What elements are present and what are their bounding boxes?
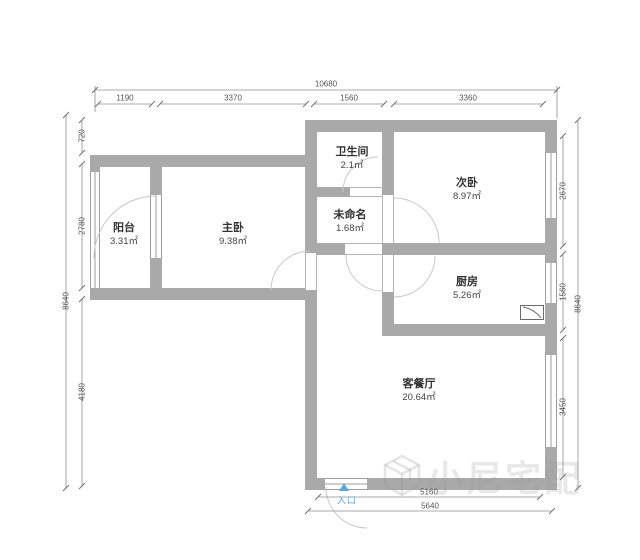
room-master-bedroom: 主卧 9.38㎡ [219,221,247,249]
room-area: 9.38㎡ [219,235,247,249]
dim-left-seg: 2780 [78,217,87,235]
watermark: 小尼宅配 [382,450,583,502]
room-area: 8.97㎡ [453,190,481,204]
watermark-cube-icon [382,454,422,498]
dim-left-seg: 4180 [78,383,87,401]
room-area: 5.26㎡ [453,289,481,303]
dim-top-seg: 3360 [459,94,477,103]
room-name: 未命名 [334,208,367,222]
dim-right-seg: 1560 [559,283,568,301]
flue-curve [523,307,541,318]
dim-right-total: 8640 [574,295,583,313]
floor-plan: 10680 1190 3370 1560 3360 8640 720 2780 … [0,0,640,560]
room-area: 3.31㎡ [110,235,138,249]
room-area: 1.68㎡ [334,222,367,236]
room-name: 主卧 [219,221,247,235]
dim-left-total: 8640 [62,292,71,310]
entrance-label: 入口 [337,494,357,507]
dim-top-seg: 3370 [224,94,242,103]
room-living-dining: 客餐厅 20.64㎡ [402,377,435,405]
room-name: 厨房 [453,275,481,289]
dim-top-seg: 1190 [116,94,133,103]
room-balcony: 阳台 3.31㎡ [110,221,138,249]
room-kitchen: 厨房 5.26㎡ [453,275,481,303]
dim-top-seg: 1560 [340,94,358,103]
room-area: 2.1㎡ [336,159,369,173]
dim-bottom-outer: 5640 [421,502,439,511]
dimension-lines [66,86,578,511]
room-name: 阳台 [110,221,138,235]
dim-right-seg: 2670 [559,182,568,200]
room-name: 卫生间 [336,145,369,159]
room-name: 客餐厅 [402,377,435,391]
room-second-bedroom: 次卧 8.97㎡ [453,176,481,204]
dim-top-total: 10680 [315,80,337,89]
watermark-text: 小尼宅配 [427,450,583,502]
room-area: 20.64㎡ [402,391,435,405]
room-unnamed: 未命名 1.68㎡ [334,208,367,236]
dim-left-seg: 720 [78,129,87,142]
room-name: 次卧 [453,176,481,190]
room-bathroom: 卫生间 2.1㎡ [336,145,369,173]
dim-right-seg: 3450 [559,398,568,416]
entrance-arrow-icon [339,483,349,491]
